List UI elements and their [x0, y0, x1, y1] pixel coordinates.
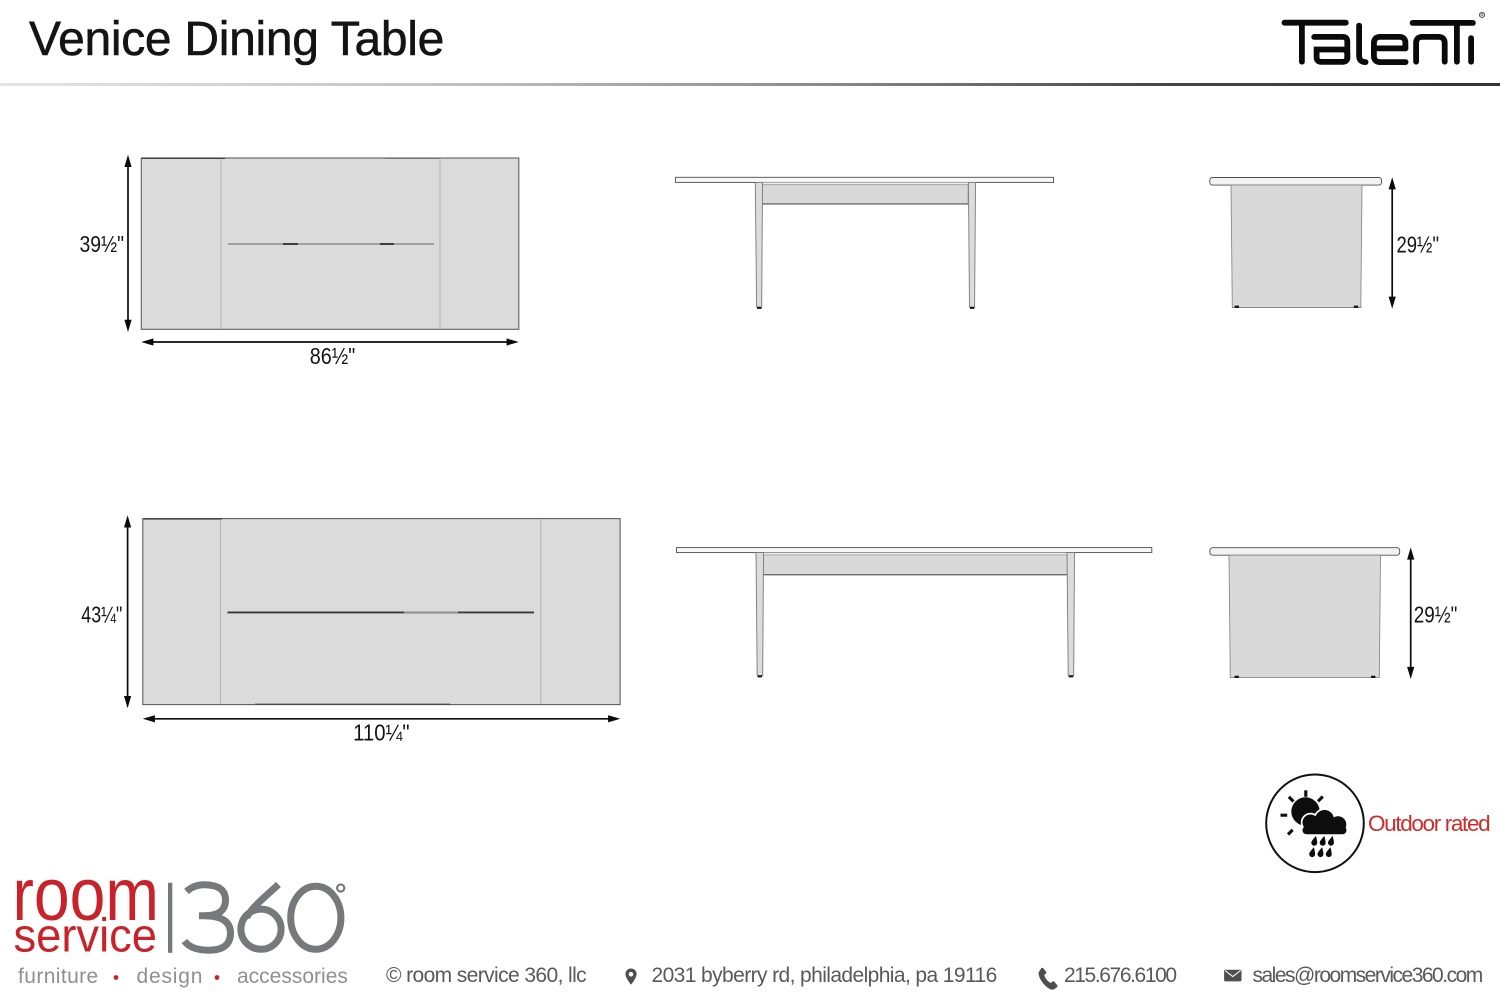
svg-text:accessories: accessories: [237, 965, 348, 988]
svg-text:© room service 360, llc: © room service 360, llc: [386, 964, 586, 987]
svg-text:Outdoor rated: Outdoor rated: [1368, 811, 1490, 836]
svg-text:2031 byberry rd, philadelphia,: 2031 byberry rd, philadelphia, pa 19116: [652, 964, 997, 987]
svg-text:86½": 86½": [310, 343, 356, 369]
svg-text:43¼": 43¼": [81, 602, 122, 628]
svg-text:29½": 29½": [1397, 231, 1440, 257]
svg-text:110¼": 110¼": [353, 719, 410, 745]
svg-text:design: design: [137, 965, 204, 988]
svg-text:215.676.6100: 215.676.6100: [1064, 964, 1176, 987]
svg-text:sales@roomservice360.com: sales@roomservice360.com: [1253, 964, 1483, 987]
svg-text:furniture: furniture: [18, 965, 99, 988]
svg-text:29½": 29½": [1414, 602, 1458, 628]
svg-text:service: service: [14, 909, 158, 962]
svg-text:39½": 39½": [80, 231, 125, 257]
